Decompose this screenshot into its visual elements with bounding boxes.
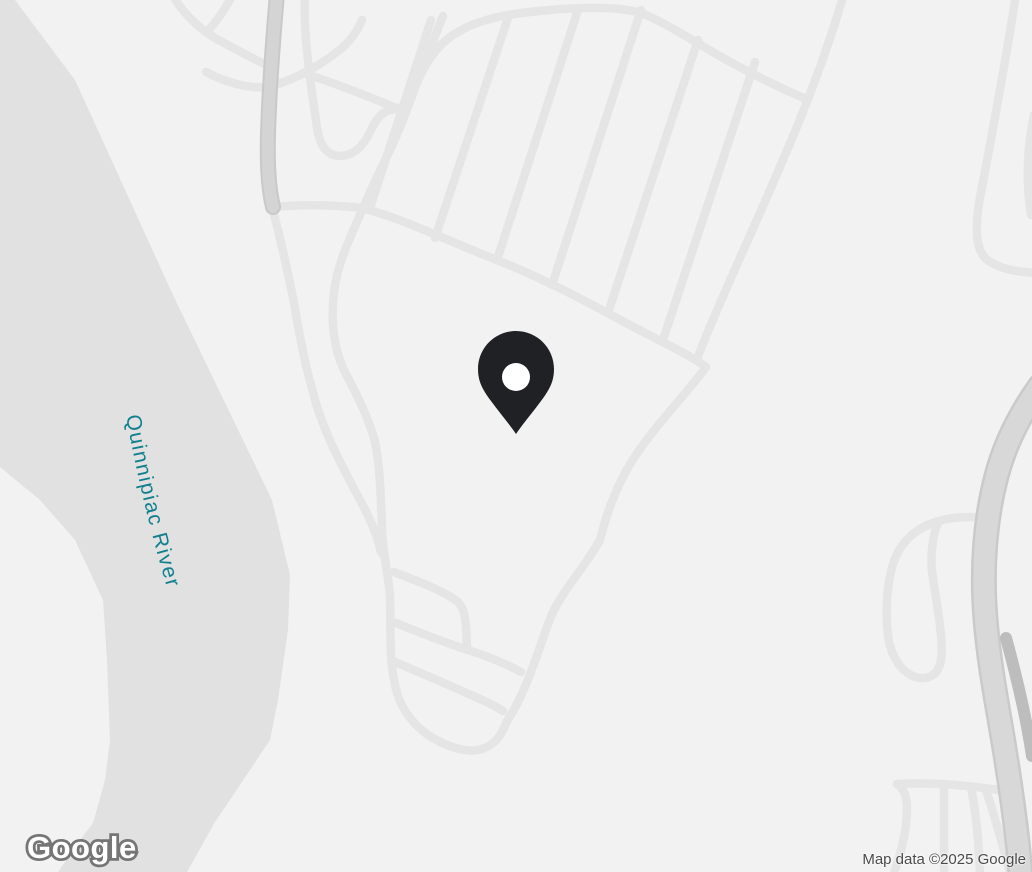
minor-roads <box>172 0 1032 872</box>
google-logo[interactable]: Google <box>27 830 137 865</box>
map-viewport[interactable]: Quinnipiac River Google Map data ©2025 G… <box>0 0 1032 872</box>
secondary-road <box>268 0 277 207</box>
map-attribution: Map data ©2025 Google <box>862 851 1026 868</box>
map-canvas[interactable]: Quinnipiac River Google <box>0 0 1032 872</box>
location-pin[interactable] <box>478 331 554 434</box>
pin-hole <box>502 363 530 391</box>
